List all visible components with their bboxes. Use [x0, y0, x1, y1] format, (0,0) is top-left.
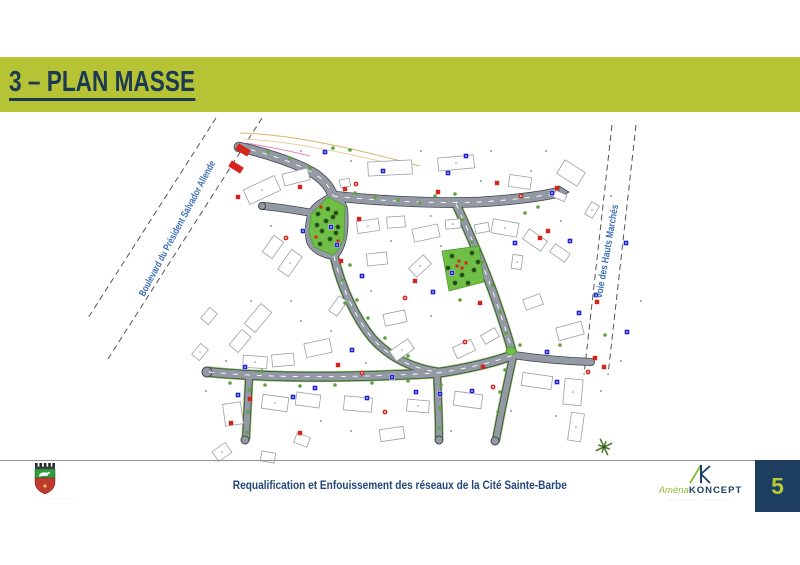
star-symbol-center [603, 446, 606, 449]
cul-de-sac [491, 437, 499, 445]
street-tree [248, 388, 252, 392]
page-number: 5 [771, 473, 784, 500]
street-tree [263, 383, 267, 387]
blue-sign-glyph [625, 242, 627, 244]
building [295, 392, 321, 408]
building-mark [254, 361, 256, 363]
red-marker [298, 431, 302, 435]
park-tree-center [329, 238, 331, 240]
building-mark [572, 391, 574, 393]
logo-tagline: ······························· [648, 498, 753, 502]
street-tree [266, 150, 270, 154]
blue-sign-glyph [391, 376, 393, 378]
building-mark [261, 189, 263, 191]
street-tree [437, 426, 441, 430]
logo-name-green: Aména [659, 485, 689, 496]
logo-name-dark: KONCEPT [689, 485, 742, 496]
annotation-speck [510, 410, 512, 412]
park-tree-center [327, 208, 329, 210]
street-tree [373, 195, 377, 199]
building [339, 178, 350, 188]
park-tree-center [325, 220, 327, 222]
red-marker-center [492, 386, 494, 388]
red-marker [298, 185, 302, 189]
building-mark [221, 451, 223, 453]
park-tree-center [454, 282, 456, 284]
building [229, 329, 251, 352]
building [304, 338, 332, 357]
street-tree [228, 381, 232, 385]
building [508, 175, 531, 190]
street-tree [308, 166, 312, 170]
blue-sign-glyph [314, 387, 316, 389]
street-tree [418, 201, 422, 205]
red-marker [337, 240, 340, 243]
red-marker [320, 206, 323, 209]
annotation-speck [610, 195, 612, 197]
annotation-speck [300, 150, 302, 152]
street-tree [355, 298, 359, 302]
red-marker [357, 217, 361, 221]
road [333, 192, 559, 203]
building-mark [504, 227, 506, 229]
red-marker-center [464, 341, 466, 343]
street-tree [333, 383, 337, 387]
blue-sign-glyph [302, 230, 304, 232]
building-mark [419, 265, 421, 267]
street-tree [406, 379, 410, 383]
street-tree [353, 191, 357, 195]
red-marker [413, 279, 417, 283]
park-tree-center [447, 267, 449, 269]
park-tree-center [317, 213, 319, 215]
blue-sign-glyph [351, 349, 353, 351]
red-marker [456, 265, 459, 268]
park-tree-center [471, 252, 473, 254]
blue-sign-glyph [447, 172, 449, 174]
street-tree [340, 278, 344, 282]
blue-sign-glyph [324, 151, 326, 153]
annotation-speck [440, 245, 442, 247]
building [244, 304, 271, 333]
building [412, 224, 440, 242]
annotation-speck [250, 300, 252, 302]
red-marker [555, 186, 559, 190]
street-tree [370, 381, 374, 385]
annotation-speck [430, 215, 432, 217]
red-marker [481, 365, 485, 369]
red-marker [229, 421, 233, 425]
park-tree-center [337, 226, 339, 228]
red-marker-center [404, 297, 406, 299]
footer-divider [0, 460, 757, 461]
park-tree-center [319, 243, 321, 245]
street-tree [496, 410, 500, 414]
building [272, 353, 295, 367]
annotation-speck [545, 150, 547, 152]
street-tree [558, 343, 562, 347]
red-marker-center [285, 237, 287, 239]
red-marker [343, 187, 347, 191]
building [523, 229, 548, 251]
park-tree-center [321, 230, 323, 232]
annotation-speck [350, 430, 352, 432]
annotation-speck [420, 150, 422, 152]
road [246, 379, 249, 438]
red-marker [602, 365, 606, 369]
street-tree [458, 298, 462, 302]
red-marker [595, 300, 599, 304]
building-mark [575, 426, 577, 428]
red-marker [458, 260, 461, 263]
park-tree-center [332, 216, 334, 218]
red-marker [236, 195, 240, 199]
annotation-speck [450, 430, 452, 432]
park-tree-center [316, 224, 318, 226]
annotation-speck [205, 390, 207, 392]
red-marker [315, 236, 318, 239]
blue-sign-glyph [432, 291, 434, 293]
street-tree [288, 156, 292, 160]
blue-sign-glyph [556, 381, 558, 383]
red-marker [538, 236, 542, 240]
red-marker-center [355, 183, 357, 185]
annotation-speck [600, 390, 602, 392]
street-tree [298, 384, 302, 388]
red-marker [495, 181, 499, 185]
boulevard-label: Boulevard du Président Salvador Allende [137, 159, 218, 299]
park-tree-center [335, 232, 337, 234]
annotation-speck [350, 160, 352, 162]
park-tree-center [473, 269, 475, 271]
park-tree-center [335, 212, 337, 214]
page-number-badge: 5 [755, 460, 800, 512]
street-tree [246, 410, 250, 414]
annotation-speck [560, 220, 562, 222]
park-tree-center [467, 282, 469, 284]
building-mark [455, 162, 457, 164]
street-tree [470, 240, 474, 244]
park-tree-center [477, 261, 479, 263]
annotation-speck [490, 150, 492, 152]
annotation-speck [555, 415, 557, 417]
voie-label: Voie des Hauts Marchés [594, 203, 621, 299]
building [453, 391, 483, 409]
building [387, 216, 406, 228]
building-mark [401, 349, 403, 351]
ak-monogram-icon [686, 461, 716, 485]
junction-green-island [506, 347, 516, 355]
street-tree [433, 194, 437, 198]
building-mark [591, 209, 593, 211]
annotation-speck [620, 360, 622, 362]
red-marker [336, 363, 340, 367]
blue-sign-glyph [465, 155, 467, 157]
annotation-speck [530, 170, 532, 172]
building [383, 310, 407, 326]
building-mark [199, 351, 201, 353]
street-tree [438, 406, 442, 410]
street-tree [348, 148, 352, 152]
blue-sign-glyph [330, 226, 332, 228]
street-tree [603, 333, 607, 337]
cul-de-sac [259, 203, 266, 210]
blue-sign-glyph [237, 394, 239, 396]
blue-sign-glyph [546, 351, 548, 353]
blue-sign-glyph [551, 192, 553, 194]
entrance-red-block [228, 160, 244, 173]
building [379, 426, 404, 441]
annotation-speck [225, 360, 227, 362]
annotation-speck [370, 290, 372, 292]
blue-sign-glyph [578, 312, 580, 314]
blue-sign-glyph [471, 390, 473, 392]
road-boundary-dashed-line [106, 118, 262, 362]
annotation-speck [330, 330, 332, 332]
project-title: Requalification et Enfouissement des rés… [233, 480, 567, 492]
building [521, 372, 553, 389]
street-tree [331, 146, 335, 150]
red-marker-center [520, 195, 522, 197]
red-marker [465, 262, 468, 265]
street-tree [366, 316, 370, 320]
park-tree-center [461, 274, 463, 276]
building [282, 168, 310, 186]
building-mark [452, 223, 454, 225]
street-tree [518, 343, 522, 347]
street-tree [503, 368, 507, 372]
red-marker [546, 229, 550, 233]
street-tree [396, 198, 400, 202]
building-mark [289, 262, 291, 264]
building [523, 294, 544, 310]
street-tree [536, 205, 540, 209]
street-tree [260, 369, 264, 373]
blue-sign-glyph [569, 240, 571, 242]
red-marker-center [384, 411, 386, 413]
red-marker-center [587, 371, 589, 373]
red-marker [461, 267, 464, 270]
street-tree [245, 430, 249, 434]
blue-sign-glyph [292, 396, 294, 398]
road [263, 206, 312, 213]
annotation-speck [365, 362, 367, 364]
building-mark [367, 225, 369, 227]
building [368, 160, 413, 176]
building [556, 321, 584, 340]
annotation-speck [320, 420, 322, 422]
annotation-speck [270, 225, 272, 227]
red-marker-center [361, 372, 363, 374]
building [366, 252, 387, 266]
cul-de-sac [241, 436, 249, 444]
street-tree [348, 263, 352, 267]
blue-sign-glyph [514, 242, 516, 244]
street-tree [498, 310, 502, 314]
blue-sign-glyph [244, 366, 246, 368]
building [201, 307, 218, 324]
building [557, 160, 586, 186]
street-tree [453, 192, 457, 196]
building-mark [516, 261, 518, 263]
blue-sign-glyph [366, 397, 368, 399]
cul-de-sac [435, 436, 443, 444]
street-tree [504, 331, 508, 335]
annotation-speck [290, 300, 292, 302]
building [474, 222, 489, 233]
annotation-speck [300, 320, 302, 322]
amena-koncept-logo: AménaKONCEPT ···························… [648, 461, 753, 502]
coat-of-arms-caption: ···························· [32, 496, 58, 500]
annotation-speck [640, 300, 642, 302]
building-mark [274, 402, 276, 404]
red-marker [593, 356, 597, 360]
slide: 3 – PLAN MASSE Boulevard du Président Sa… [0, 0, 800, 565]
street-tree [439, 383, 443, 387]
street-tree [480, 260, 484, 264]
red-marker [478, 301, 482, 305]
red-marker [248, 397, 252, 401]
blue-sign-glyph [415, 391, 417, 393]
street-tree [523, 211, 527, 215]
street-tree [406, 354, 410, 358]
building [550, 244, 570, 263]
logo-name: AménaKONCEPT [648, 486, 753, 496]
street-tree [383, 336, 387, 340]
red-marker [339, 259, 343, 263]
building [262, 235, 283, 258]
annotation-speck [480, 180, 482, 182]
blue-sign-glyph [439, 393, 441, 395]
annotation-speck [430, 315, 432, 317]
blue-sign-glyph [382, 170, 384, 172]
building-mark [417, 405, 419, 407]
blue-sign-glyph [361, 275, 363, 277]
street-tree [498, 390, 502, 394]
red-marker [436, 190, 440, 194]
street-tree [343, 301, 347, 305]
blue-sign-glyph [336, 244, 338, 246]
building [481, 328, 500, 345]
street-tree [460, 218, 464, 222]
park-tree-center [451, 255, 453, 257]
street-tree [490, 283, 494, 287]
building [260, 451, 276, 463]
annotation-speck [390, 240, 392, 242]
blue-sign-glyph [451, 272, 453, 274]
blue-sign-glyph [626, 331, 628, 333]
